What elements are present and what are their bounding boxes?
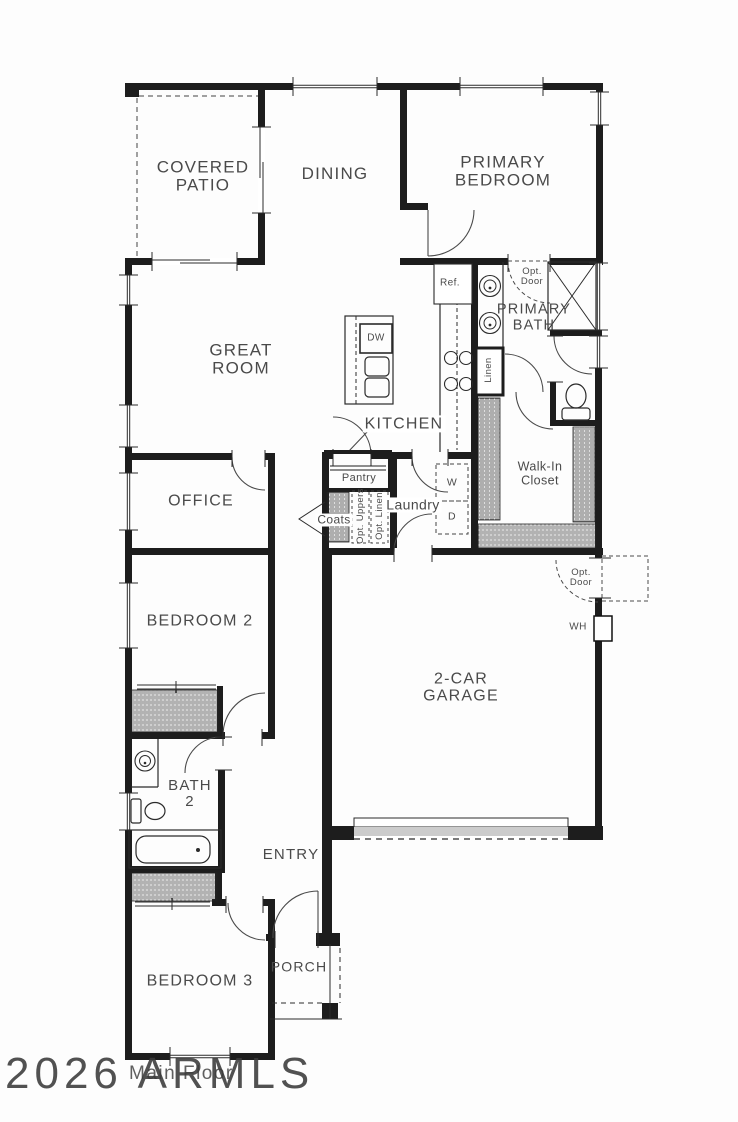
cooktop [445,352,473,391]
room-label-kitchen: KITCHEN [363,415,446,432]
kitchen-leader-line [348,431,368,452]
island-sink-basin-1 [365,357,389,376]
room-label-great-room: GREAT ROOM [209,342,272,379]
feature-label-ref: Ref. [438,279,462,290]
feature-label-opt-door-garage: Opt. Door [570,568,592,589]
feature-label-linen: Linen [484,357,494,382]
floor-plan-page: COVERED PATIO DINING PRIMARY BEDROOM GRE… [0,0,738,1122]
room-label-office: OFFICE [168,492,234,509]
windows [119,77,609,1066]
walls [125,83,603,1060]
door-office [232,457,265,490]
room-label-laundry: Laundry [384,497,441,512]
room-label-bath-2: BATH 2 [168,778,212,810]
garage-door [354,816,568,840]
room-label-walk-in-closet: Walk-In Closet [518,461,563,488]
window-toilet-right [589,336,608,368]
feature-label-water-heater: WH [569,623,586,634]
door-walkin-closet [516,392,553,429]
door-entry-front [273,891,318,938]
bedroom2-closet-shelf [131,690,219,732]
room-label-primary-bedroom: PRIMARY BEDROOM [455,154,551,191]
primary-toilet [562,384,590,420]
walkin-shelf-bottom [478,524,596,548]
door-laundry [412,456,448,492]
bath2-toilet [131,799,165,823]
door-bath-hall [505,354,543,392]
door-toilet-room [554,336,592,374]
door-bedroom3 [228,903,265,940]
walkin-shelf-right [573,427,595,522]
window-greatroom-left-1 [119,275,138,305]
floor-plan-drawing [0,0,738,1122]
feature-label-washer: W [447,477,457,488]
room-label-bedroom-3: BEDROOM 3 [147,972,254,989]
window-shower-right [589,263,608,330]
door-garage-to-laundry [394,514,432,552]
window-office-left [119,473,138,530]
feature-label-dryer: D [448,511,456,522]
vanity-sink-1 [480,276,501,297]
door-bath2 [185,737,221,773]
room-label-porch: PORCH [271,959,328,974]
window-primary-bedroom-right [590,92,609,125]
feature-label-coats: Coats [315,514,352,527]
feature-label-dw: DW [367,334,384,345]
door-primary-bedroom [428,210,474,256]
room-label-covered-patio: COVERED PATIO [157,159,249,196]
walkin-shelf-left [478,398,500,520]
feature-label-pantry: Pantry [342,473,376,485]
opt-door-garage-landing [602,556,648,601]
room-label-entry: ENTRY [263,847,320,863]
kitchen-island [345,316,393,404]
bath2-sink [135,751,155,771]
bathtub [129,830,221,868]
door-bedroom2 [223,693,265,735]
room-label-garage: 2-CAR GARAGE [423,671,499,706]
feature-label-opt-linen: Opt. Linen [375,492,385,540]
window-greatroom-left-2 [119,405,138,447]
water-heater [594,616,612,641]
armls-watermark: 2026 ARMLS [5,1050,314,1098]
slider-patio-greatroom [152,252,237,271]
feature-label-opt-door-primary: Opt. Door [521,267,543,288]
room-label-primary-bath: PRIMARY BATH [497,302,571,333]
room-label-dining: DINING [302,165,369,183]
entry-closet-shelf [131,873,217,901]
window-bedroom2-left [119,583,138,648]
island-sink-basin-2 [365,378,389,397]
window-dining-top [293,77,377,96]
room-label-bedroom-2: BEDROOM 2 [147,612,254,629]
window-primary-bedroom-top [460,77,543,96]
slider-patio-dining [252,127,271,213]
feature-label-opt-uppers: Opt. Uppers [356,488,366,544]
